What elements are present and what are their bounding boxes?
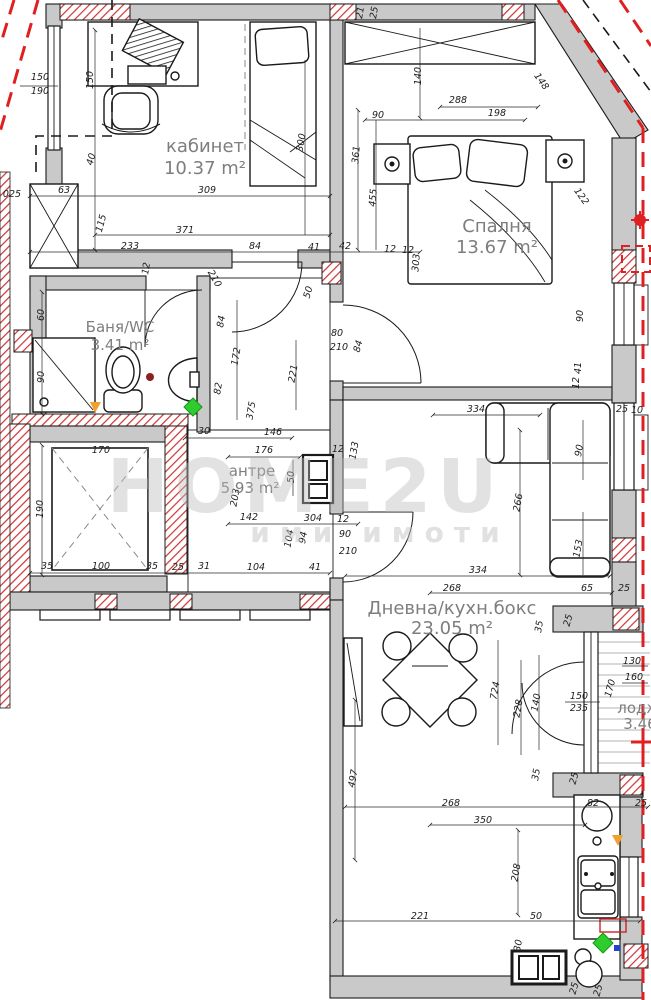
kitchen-window — [620, 857, 638, 917]
nightstand-right — [546, 140, 584, 182]
dimension-label: 198 — [488, 108, 506, 119]
dimension-label: 35 — [41, 561, 53, 572]
dimension-label: 25 — [616, 404, 628, 415]
dimension-label: 235 — [570, 703, 588, 714]
neighbor-sill — [634, 285, 648, 345]
dimension-label: 146 — [264, 427, 282, 438]
office-window — [48, 26, 60, 150]
dimension-label: 190 — [35, 500, 46, 518]
dimension-label: 233 — [121, 241, 139, 252]
dimension-label: 371 — [176, 225, 194, 236]
room-living-area: 23.05 m² — [411, 618, 493, 639]
office-wardrobe — [30, 184, 78, 268]
room-office-name: кабинет — [166, 136, 244, 157]
room-bedroom-area: 13.67 m² — [456, 237, 538, 258]
corner-sofa — [486, 403, 610, 577]
dimension-label: 50 — [302, 285, 316, 300]
dimension-label: 150 — [31, 72, 49, 83]
dimension-label: 350 — [474, 815, 492, 826]
double-bed — [408, 136, 552, 284]
dimension-label: 40 — [85, 152, 99, 167]
neighbor-sill — [634, 415, 648, 490]
dimension-label: 268 — [442, 798, 460, 809]
dimension-label: 724 — [489, 681, 503, 701]
pillow — [466, 139, 529, 188]
dimension-label: 288 — [449, 95, 467, 106]
dimension-label: 190 — [31, 86, 49, 97]
dimension-label: 140 — [413, 67, 424, 85]
dimension-label: 25 — [172, 562, 184, 573]
dimension-label: 30 — [198, 426, 210, 437]
dimension-label: 221 — [287, 364, 301, 384]
pillow — [412, 144, 461, 183]
blue-square-marker — [614, 945, 620, 951]
corridor-floor — [210, 278, 330, 430]
dimension-label: 104 — [247, 562, 265, 573]
dimension-label: 65 — [581, 583, 593, 594]
dimension-label: 210 — [330, 342, 348, 353]
dimension-label: 172 — [230, 347, 244, 367]
dimension-label: 41 — [573, 362, 584, 374]
single-bed — [250, 22, 316, 186]
dimension-label: 84 — [249, 241, 261, 252]
dimension-label: 12 — [571, 377, 582, 389]
dimension-label: 221 — [411, 911, 429, 922]
dimension-label: 50 — [530, 911, 542, 922]
dimension-label: 90 — [575, 310, 586, 322]
dimension-label: 30 — [512, 939, 525, 953]
dimension-label: 497 — [347, 769, 361, 789]
dimension-label: 80 — [331, 328, 343, 339]
dimension-label: 025 — [3, 189, 21, 200]
dimension-label: 361 — [350, 145, 363, 164]
dimension-label: 42 — [339, 241, 351, 252]
dimension-label: 309 — [198, 185, 216, 196]
floor-plan-page: 1501901504011530002563309371233844112124… — [0, 0, 651, 1000]
dimension-label: 90 — [573, 444, 586, 458]
dimension-label: 31 — [198, 561, 210, 572]
dimension-label: 148 — [531, 71, 550, 92]
dimension-label: 41 — [309, 562, 321, 573]
dimension-label: 122 — [571, 186, 590, 207]
room-bath-name: Баня/WC — [86, 318, 155, 336]
bath-sink — [168, 358, 199, 402]
living-window — [614, 403, 634, 490]
dimension-label: 41 — [308, 242, 320, 253]
dimension-label: 90 — [36, 371, 47, 383]
room-loggia-area: 3.46 — [623, 715, 651, 733]
room-bath-area: 3.41 m² — [91, 336, 150, 354]
dimension-label: 303 — [410, 253, 423, 272]
dimension-label: 35 — [146, 561, 158, 572]
dimension-label: 60 — [36, 309, 47, 321]
dimension-label: 84 — [215, 315, 228, 329]
bedroom-wardrobe — [345, 22, 535, 64]
dimension-label: 334 — [469, 565, 487, 576]
stove — [512, 951, 566, 984]
dimension-label: 208 — [510, 863, 524, 883]
dimension-label: 150 — [85, 71, 96, 89]
diagonal-wall — [535, 4, 648, 144]
dimension-label: 170 — [603, 678, 618, 698]
dimension-label: 115 — [94, 213, 109, 233]
watermark-subtitle: ими имоти — [250, 516, 509, 549]
office-door — [232, 262, 302, 332]
dimension-label: 268 — [443, 583, 461, 594]
tv-unit — [344, 638, 362, 726]
dimension-label: 25 — [635, 798, 647, 809]
dimension-label: 12 — [384, 244, 396, 255]
dimension-label: 130 — [623, 656, 641, 667]
dimension-label: 25 — [618, 583, 630, 594]
dimension-label: 82 — [587, 798, 599, 809]
desk — [88, 19, 198, 86]
dimension-label: 375 — [245, 401, 259, 421]
dimension-label: 35 — [530, 768, 543, 782]
dimension-label: 10 — [631, 405, 643, 416]
dimension-label: 82 — [212, 382, 225, 396]
dimension-label: 63 — [58, 185, 70, 196]
dimension-label: 21 — [354, 6, 367, 20]
section-strip — [0, 172, 10, 708]
dimension-label: 228 — [512, 699, 526, 719]
dimension-label: 84 — [352, 339, 366, 354]
center-column — [322, 262, 341, 284]
room-living-name: Дневна/кухн.бокс — [368, 598, 537, 619]
dimension-label: 100 — [92, 561, 110, 572]
pillow — [255, 26, 309, 66]
dimension-label: 266 — [512, 493, 526, 513]
dimension-label: 12 — [140, 262, 153, 276]
door-stop-marker — [146, 373, 154, 381]
dimension-label: 25 — [368, 6, 381, 20]
room-bedroom-name: Спалня — [462, 216, 531, 237]
office-chair — [102, 86, 160, 134]
dimension-label: 140 — [530, 693, 544, 713]
dimension-label: 35 — [533, 620, 546, 634]
red-cross-icon — [631, 730, 651, 754]
dimension-label: 90 — [372, 110, 384, 121]
room-office-area: 10.37 m² — [164, 158, 246, 179]
keyboard — [128, 66, 166, 84]
dimension-label: 455 — [367, 188, 380, 207]
dimension-label: 160 — [625, 672, 643, 683]
dimension-label: 150 — [570, 691, 588, 702]
kitchen-counter — [574, 795, 620, 939]
nightstand-left — [374, 144, 410, 184]
dimension-label: 334 — [467, 404, 485, 415]
toilet — [104, 347, 142, 412]
floor-plan-drawing: 1501901504011530002563309371233844112124… — [0, 0, 651, 1000]
small-sink — [575, 949, 602, 987]
